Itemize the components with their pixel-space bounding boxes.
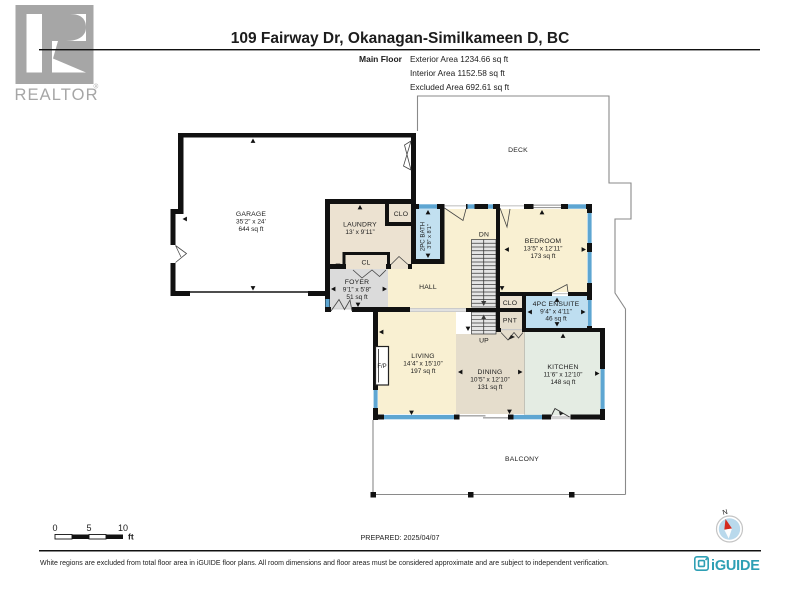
svg-text:148 sq ft: 148 sq ft (551, 379, 576, 386)
svg-text:2PC BATH: 2PC BATH (420, 222, 427, 251)
svg-text:3’8” x 8’1”: 3’8” x 8’1” (427, 224, 433, 249)
svg-text:Excluded Area 692.61 sq ft: Excluded Area 692.61 sq ft (410, 82, 510, 92)
svg-text:51 sq ft: 51 sq ft (346, 294, 368, 301)
svg-text:HALL: HALL (419, 284, 437, 291)
svg-text:0: 0 (52, 523, 57, 533)
svg-text:KITCHEN: KITCHEN (547, 364, 578, 371)
svg-text:35’2” x 24’: 35’2” x 24’ (236, 219, 267, 226)
svg-text:DINING: DINING (478, 369, 503, 376)
svg-text:F/P: F/P (377, 364, 386, 370)
svg-text:ft: ft (128, 532, 134, 542)
svg-text:REALTOR: REALTOR (15, 86, 99, 104)
svg-text:5: 5 (86, 523, 91, 533)
svg-text:FOYER: FOYER (345, 279, 369, 286)
svg-text:UP: UP (479, 338, 489, 345)
svg-text:BALCONY: BALCONY (505, 456, 539, 463)
svg-text:LAUNDRY: LAUNDRY (343, 222, 377, 229)
svg-text:10: 10 (118, 523, 128, 533)
svg-text:109 Fairway Dr, Okanagan-Simil: 109 Fairway Dr, Okanagan-Similkameen D, … (231, 30, 570, 47)
svg-text:644 sq ft: 644 sq ft (239, 226, 264, 233)
svg-text:N: N (722, 509, 729, 517)
svg-text:®: ® (94, 83, 99, 91)
svg-text:Interior Area 1152.58 sq ft: Interior Area 1152.58 sq ft (410, 68, 506, 78)
svg-text:DN: DN (479, 232, 489, 239)
svg-text:13’ x 9’11”: 13’ x 9’11” (345, 229, 374, 236)
svg-text:PNT: PNT (503, 318, 517, 325)
svg-text:PREPARED: 2025/04/07: PREPARED: 2025/04/07 (361, 533, 440, 542)
svg-text:9’4” x 4’11”: 9’4” x 4’11” (540, 309, 572, 316)
svg-text:197 sq ft: 197 sq ft (411, 368, 436, 375)
svg-text:10’5” x 12’10”: 10’5” x 12’10” (470, 377, 509, 384)
svg-text:173 sq ft: 173 sq ft (531, 253, 556, 260)
svg-text:13’5” x 12’11”: 13’5” x 12’11” (524, 246, 563, 253)
svg-text:9’1” x 5’8”: 9’1” x 5’8” (343, 287, 372, 294)
svg-text:DECK: DECK (508, 147, 528, 154)
svg-text:11’6” x 12’10”: 11’6” x 12’10” (544, 372, 583, 379)
svg-text:CLO: CLO (394, 211, 409, 218)
svg-text:Exterior Area 1234.66 sq ft: Exterior Area 1234.66 sq ft (410, 54, 509, 64)
svg-text:131 sq ft: 131 sq ft (478, 384, 503, 391)
svg-text:Main Floor: Main Floor (359, 54, 403, 64)
svg-text:CLO: CLO (503, 300, 518, 307)
svg-text:BEDROOM: BEDROOM (525, 238, 562, 245)
svg-text:14’4” x 15’10”: 14’4” x 15’10” (403, 361, 442, 368)
svg-text:4PC ENSUITE: 4PC ENSUITE (533, 301, 580, 308)
svg-text:CL: CL (361, 260, 370, 267)
svg-text:GARAGE: GARAGE (236, 211, 267, 218)
svg-text:LIVING: LIVING (411, 353, 435, 360)
svg-text:iGUIDE: iGUIDE (711, 558, 760, 574)
svg-text:46 sq ft: 46 sq ft (545, 316, 567, 323)
svg-text:White regions are excluded fro: White regions are excluded from total fl… (40, 560, 609, 567)
